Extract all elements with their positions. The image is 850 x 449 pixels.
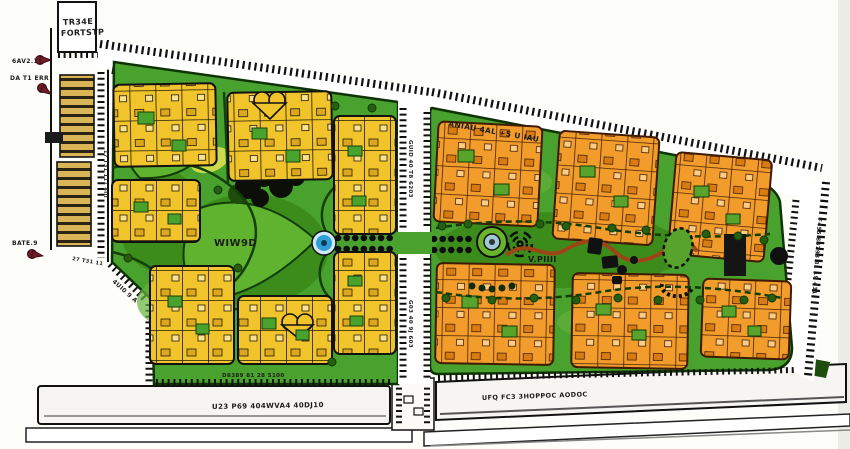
- south-note-label: D8389 81 28 5100: [222, 373, 285, 379]
- large-tree-icon: [770, 247, 788, 265]
- central-spine-road: [396, 96, 432, 384]
- site-plan-page: TR34E FORTSTP: [0, 0, 850, 449]
- yellow-cluster-c: [334, 116, 396, 234]
- carport-row-south: [57, 162, 91, 246]
- avenue-crossing: [396, 232, 432, 254]
- corner-building-label-1: TR34E: [63, 17, 94, 27]
- spine-road-label-lower: G03 40 9J 603: [407, 300, 413, 348]
- utility-structure: [45, 132, 63, 143]
- orange-cluster-4: [435, 263, 555, 365]
- spine-road-label-upper: GUID 40 T8 6203: [407, 140, 413, 198]
- east-park-label: V.PIIII: [528, 255, 557, 264]
- site-plan-canvas: TR34E FORTSTP: [0, 0, 850, 449]
- yellow-cluster-e: [150, 266, 234, 364]
- carport-row-north: [60, 75, 94, 157]
- yellow-cluster-f: [238, 296, 332, 364]
- yellow-cluster-g: [334, 252, 396, 354]
- yellow-cluster-d: [112, 180, 200, 242]
- west-road-label: 17 T31 111 4III: [102, 150, 108, 198]
- corner-building-label-2: FORTSTP: [61, 27, 105, 38]
- orange-cluster-6: [701, 278, 792, 359]
- marker-label-3: BATE.9: [12, 240, 38, 247]
- yellow-cluster-a: [113, 83, 216, 167]
- marker-label-1: 6AV2.1: [12, 58, 38, 65]
- marker-label-2: DA T1 ERR: [10, 75, 49, 82]
- boulevard-west-lower-strip: [26, 428, 412, 442]
- amenity-building-icon: [724, 234, 746, 276]
- west-park-label: WIW9D: [214, 238, 257, 249]
